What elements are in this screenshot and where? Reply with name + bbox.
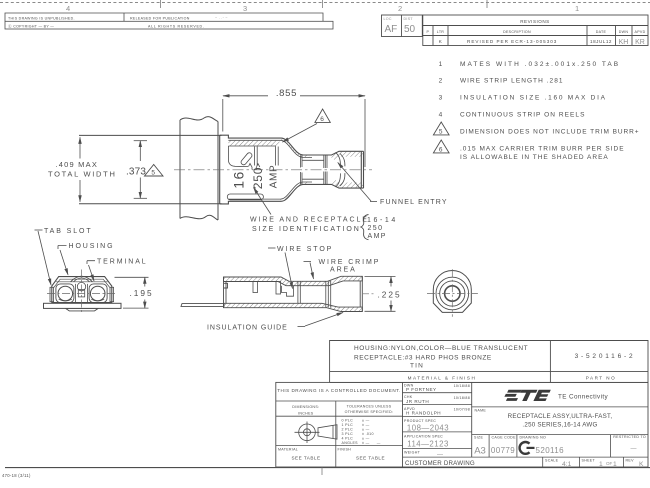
svg-text:4:1: 4:1 bbox=[562, 461, 572, 468]
svg-text:RECEPTACLE ASSY,ULTRA-FAST,: RECEPTACLE ASSY,ULTRA-FAST, bbox=[508, 413, 613, 420]
svg-text:SCALE: SCALE bbox=[545, 459, 559, 463]
svg-text:6: 6 bbox=[439, 147, 444, 154]
svg-text:ANGLES: ANGLES bbox=[342, 441, 359, 445]
svg-text:REV: REV bbox=[626, 459, 635, 463]
svg-text:HOUSING:NYLON,COLOR—BLUE TRANS: HOUSING:NYLON,COLOR—BLUE TRANSLUCENT bbox=[354, 345, 528, 352]
svg-text:REVISIONS: REVISIONS bbox=[520, 19, 550, 24]
svg-text:NAME: NAME bbox=[475, 409, 487, 413]
svg-text:± —: ± — bbox=[362, 419, 370, 423]
svg-text:4 PLC: 4 PLC bbox=[342, 437, 354, 441]
svg-text:INCHES: INCHES bbox=[298, 411, 314, 415]
svg-text:520116: 520116 bbox=[536, 446, 565, 455]
svg-text:5: 5 bbox=[439, 129, 444, 136]
svg-text:REVISED PER ECR-13-005303: REVISED PER ECR-13-005303 bbox=[467, 39, 557, 44]
svg-text:0 PLC: 0 PLC bbox=[342, 419, 354, 423]
svg-text:CAGE CODE: CAGE CODE bbox=[492, 436, 517, 440]
svg-text:DWN: DWN bbox=[619, 30, 629, 34]
svg-text:DRAWING NO: DRAWING NO bbox=[520, 436, 547, 440]
svg-text:APVD: APVD bbox=[635, 30, 646, 34]
svg-text:LTR: LTR bbox=[437, 30, 445, 34]
svg-text:1: 1 bbox=[575, 4, 579, 13]
svg-text:MATERIAL & FINISH: MATERIAL & FINISH bbox=[408, 376, 477, 381]
svg-text:DESCRIPTION: DESCRIPTION bbox=[503, 30, 531, 34]
svg-text:DIMENSION DOES NOT INCLUDE: DIMENSION DOES NOT INCLUDE TRIM BURR+ bbox=[460, 128, 640, 135]
svg-text:MATERIAL: MATERIAL bbox=[278, 447, 298, 451]
svg-text:AREA: AREA bbox=[330, 267, 357, 274]
svg-text:INSULATION GUIDE: INSULATION GUIDE bbox=[207, 325, 288, 332]
svg-text:1: 1 bbox=[599, 461, 603, 468]
svg-text:—: — bbox=[631, 446, 637, 452]
svg-text:AMP: AMP bbox=[269, 165, 280, 188]
svg-text:.015 MAX CARRIER TRIM BURR: .015 MAX CARRIER TRIM BURR PER SIDE bbox=[460, 145, 625, 152]
svg-text:WEIGHT: WEIGHT bbox=[404, 450, 421, 454]
svg-text:114—2123: 114—2123 bbox=[407, 440, 449, 449]
svg-text:± — —: ± — — bbox=[362, 441, 381, 445]
svg-text:LOC: LOC bbox=[384, 17, 392, 21]
svg-text:—: — bbox=[437, 452, 443, 458]
svg-text:~ . .- ~: ~ . .- ~ bbox=[215, 15, 228, 19]
svg-text:10/18/88: 10/18/88 bbox=[454, 384, 470, 388]
svg-text:.225: .225 bbox=[378, 290, 402, 300]
svg-text:RELEASED FOR PUBLICATION: RELEASED FOR PUBLICATION bbox=[130, 16, 190, 20]
svg-text:1 PLC: 1 PLC bbox=[342, 423, 354, 427]
svg-text:KR: KR bbox=[635, 39, 645, 46]
svg-text:CONTINUOUS STRIP ON REELS: CONTINUOUS STRIP ON REELS bbox=[460, 112, 585, 119]
svg-text:4: 4 bbox=[66, 4, 70, 13]
svg-text:3: 3 bbox=[243, 4, 247, 13]
svg-text:INSULATION SIZE .160 MAX D: INSULATION SIZE .160 MAX DIA bbox=[460, 95, 607, 102]
svg-text:± —: ± — bbox=[362, 423, 370, 427]
svg-text:P FORTNEY: P FORTNEY bbox=[406, 387, 437, 392]
svg-text:MATES WITH .032±.001x.250 T: MATES WITH .032±.001x.250 TAB bbox=[460, 61, 620, 68]
svg-text:AMP: AMP bbox=[368, 233, 387, 240]
svg-text:TERMINAL: TERMINAL bbox=[97, 258, 148, 265]
svg-text:.409 MAX: .409 MAX bbox=[56, 160, 99, 169]
svg-text:470-18 (3/11): 470-18 (3/11) bbox=[2, 473, 31, 478]
svg-text:SIZE IDENTIFICATION: SIZE IDENTIFICATION bbox=[252, 226, 361, 233]
svg-text:PART NO: PART NO bbox=[586, 376, 616, 381]
svg-text:OTHERWISE SPECIFIED:: OTHERWISE SPECIFIED: bbox=[345, 410, 394, 414]
svg-text:DIST: DIST bbox=[404, 17, 414, 21]
svg-text:THIS DRAWING IS UNPUBLISHED.: THIS DRAWING IS UNPUBLISHED. bbox=[8, 16, 75, 20]
svg-text:1: 1 bbox=[613, 461, 617, 468]
svg-text:SHEET: SHEET bbox=[582, 459, 596, 463]
svg-text:RECEPTACLE:#3 HARD PHOS BRO: RECEPTACLE:#3 HARD PHOS BRONZE bbox=[354, 354, 492, 361]
svg-text:TOTAL WIDTH: TOTAL WIDTH bbox=[48, 170, 117, 179]
svg-text:108—2043: 108—2043 bbox=[407, 423, 449, 432]
svg-text:TE Connectivity: TE Connectivity bbox=[558, 393, 609, 400]
svg-text:THIS DRAWING IS A CONTROLL: THIS DRAWING IS A CONTROLLED DOCUMENT. bbox=[277, 388, 400, 393]
svg-text:CUSTOMER DRAWING: CUSTOMER DRAWING bbox=[405, 460, 475, 467]
svg-text:.250 SERIES,16-14 AWG: .250 SERIES,16-14 AWG bbox=[522, 421, 597, 428]
svg-text:00779: 00779 bbox=[491, 446, 515, 455]
svg-text:AF: AF bbox=[385, 24, 398, 35]
svg-text:TOLERANCES UNLESS: TOLERANCES UNLESS bbox=[347, 404, 392, 408]
svg-text:3-520116-2: 3-520116-2 bbox=[575, 353, 636, 360]
svg-text:HOUSING: HOUSING bbox=[69, 243, 115, 250]
svg-text:SEE TABLE: SEE TABLE bbox=[291, 456, 320, 461]
svg-text:TIN: TIN bbox=[410, 362, 424, 369]
svg-text:4: 4 bbox=[439, 112, 444, 119]
svg-text:± —: ± — bbox=[362, 437, 370, 441]
svg-text:DIMENSIONS:: DIMENSIONS: bbox=[292, 405, 319, 409]
svg-text:P: P bbox=[427, 30, 430, 34]
svg-text:FINISH: FINISH bbox=[338, 447, 352, 451]
svg-text:± —: ± — bbox=[362, 428, 370, 432]
svg-text:10/07/98: 10/07/98 bbox=[454, 408, 470, 412]
svg-text:16-14: 16-14 bbox=[367, 217, 398, 224]
svg-text:± .010: ± .010 bbox=[362, 432, 374, 436]
svg-text:ALL RIGHTS RESERVED.: ALL RIGHTS RESERVED. bbox=[148, 25, 205, 29]
svg-text:18JUL12: 18JUL12 bbox=[590, 39, 612, 44]
svg-text:3 PLC: 3 PLC bbox=[342, 432, 354, 436]
svg-text:K: K bbox=[439, 39, 443, 44]
svg-text:.195: .195 bbox=[130, 288, 154, 298]
svg-text:Ⓒ COPYRIGHT — BY —: Ⓒ COPYRIGHT — BY — bbox=[8, 24, 54, 29]
svg-text:2 PLC: 2 PLC bbox=[342, 428, 354, 432]
svg-text:SEE TABLE: SEE TABLE bbox=[356, 456, 385, 461]
svg-text:50: 50 bbox=[404, 24, 416, 35]
svg-text:.373: .373 bbox=[126, 167, 146, 178]
svg-text:WIRE AND RECEPTACLE: WIRE AND RECEPTACLE bbox=[250, 217, 369, 224]
svg-text:TAB SLOT: TAB SLOT bbox=[44, 228, 93, 235]
svg-text:WIRE CRIMP: WIRE CRIMP bbox=[319, 259, 381, 266]
svg-text:OF: OF bbox=[606, 461, 613, 466]
svg-text:.855: .855 bbox=[276, 88, 297, 99]
svg-text:250: 250 bbox=[368, 225, 384, 232]
svg-text:JR RUTH: JR RUTH bbox=[406, 399, 429, 404]
svg-text:3: 3 bbox=[439, 95, 444, 102]
svg-text:IS ALLOWABLE IN THE SHADED: IS ALLOWABLE IN THE SHADED AREA bbox=[460, 154, 609, 161]
svg-text:6: 6 bbox=[320, 116, 325, 123]
svg-text:A3: A3 bbox=[474, 446, 486, 457]
svg-text:APPLICATION SPEC: APPLICATION SPEC bbox=[404, 434, 443, 438]
svg-text:RESTRICTED TO: RESTRICTED TO bbox=[613, 435, 646, 439]
svg-text:FUNNEL ENTRY: FUNNEL ENTRY bbox=[380, 199, 448, 206]
svg-text:2: 2 bbox=[398, 4, 402, 13]
svg-text:K: K bbox=[639, 461, 644, 468]
svg-text:16: 16 bbox=[231, 170, 247, 189]
svg-text:250: 250 bbox=[251, 167, 265, 189]
svg-text:SIZE: SIZE bbox=[474, 436, 483, 440]
svg-text:H RANDOLPH: H RANDOLPH bbox=[406, 411, 441, 416]
svg-text:WIRE STRIP LENGTH .281: WIRE STRIP LENGTH .281 bbox=[460, 78, 564, 85]
svg-text:DATE: DATE bbox=[596, 30, 607, 34]
svg-text:PRODUCT SPEC: PRODUCT SPEC bbox=[404, 419, 436, 423]
svg-text:KH: KH bbox=[619, 39, 629, 46]
svg-text:5: 5 bbox=[151, 170, 156, 177]
svg-text:WIRE STOP: WIRE STOP bbox=[277, 246, 333, 253]
svg-text:10/18/88: 10/18/88 bbox=[454, 396, 470, 400]
svg-text:2: 2 bbox=[439, 78, 444, 85]
svg-text:1: 1 bbox=[439, 61, 444, 68]
